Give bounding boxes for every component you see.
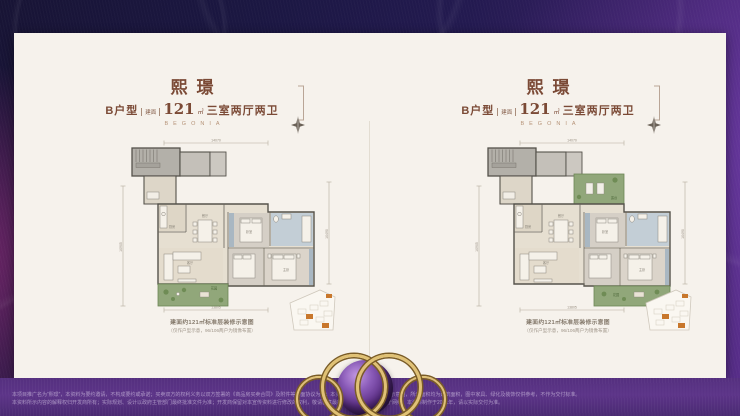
dimension-label-right: 10490 xyxy=(681,229,685,239)
room-label-master: 主卧 xyxy=(283,267,290,272)
unit-type-label: B户型 xyxy=(461,102,494,118)
compass-icon xyxy=(646,115,662,135)
unit-spec: B户型 建面 121 ㎡ 三室两厅两卫 xyxy=(14,102,370,118)
brand-name: BEGONIA xyxy=(14,121,370,127)
room-label-living: 客厅 xyxy=(543,260,550,265)
compass-icon xyxy=(290,115,306,135)
area-value: 121 xyxy=(163,102,194,117)
plan-caption: 建面约121㎡标准层装修示意图 （仅作户型示意，96/106两户为镜像布置） xyxy=(470,317,666,334)
room-label-bedroom: 卧室 xyxy=(246,229,252,234)
page-background: 熙璟 B户型 建面 121 ㎡ 三室两厅两卫 BEGONIA xyxy=(0,0,740,416)
dimension-label-bottom: 13805 xyxy=(567,306,577,310)
dimension-label-left: 10905 xyxy=(475,242,479,252)
site-key-host xyxy=(286,287,338,338)
brand-name: BEGONIA xyxy=(370,121,726,127)
room-label-kitchen: 厨房 xyxy=(169,224,175,229)
floorplan-panel-left: 熙璟 B户型 建面 121 ㎡ 三室两厅两卫 BEGONIA xyxy=(14,33,370,378)
room-label-dining: 餐厅 xyxy=(202,213,209,218)
unit-type-label: B户型 xyxy=(105,102,138,118)
site-key-map xyxy=(642,287,694,333)
caption-line2: （仅作户型示意，96/106两户为镜像布置） xyxy=(114,328,310,334)
garden: 花园 xyxy=(158,284,228,306)
plan-caption: 建面约121㎡标准层装修示意图 （仅作户型示意，96/106两户为镜像布置） xyxy=(114,317,310,334)
caption-line2: （仅作户型示意，96/106两户为镜像布置） xyxy=(470,328,666,334)
unit-spec: B户型 建面 121 ㎡ 三室两厅两卫 xyxy=(370,102,726,118)
area-unit: ㎡ xyxy=(554,107,560,116)
layout-label: 三室两厅两卫 xyxy=(207,102,279,118)
dimension-label-right: 10490 xyxy=(325,229,329,239)
room-label-terrace: 露台 xyxy=(611,195,617,200)
site-key-host xyxy=(642,287,694,338)
brand-ornament xyxy=(320,350,420,416)
gold-ring-icon xyxy=(356,354,422,416)
floorplan-panel-right: 熙璟 B户型 建面 121 ㎡ 三室两厅两卫 BEGONIA xyxy=(370,33,726,378)
floorplan-card: 熙璟 B户型 建面 121 ㎡ 三室两厅两卫 BEGONIA xyxy=(14,33,726,378)
entry-hall xyxy=(500,176,532,204)
caption-line1: 建面约121㎡标准层装修示意图 xyxy=(470,317,666,326)
dimension-label-top: 14070 xyxy=(567,139,577,143)
unit-title: 熙璟 xyxy=(14,73,370,98)
stair-core xyxy=(132,148,226,176)
room-label-bedroom: 卧室 xyxy=(602,229,608,234)
site-key-map xyxy=(286,287,338,333)
dimension-label-top: 14070 xyxy=(211,139,221,143)
room-label-master: 主卧 xyxy=(639,267,646,272)
area-value: 121 xyxy=(519,102,550,117)
room-label-kitchen: 厨房 xyxy=(525,224,531,229)
area-unit: ㎡ xyxy=(198,107,204,116)
room-label-garden: 花园 xyxy=(211,286,217,291)
room-label-dining: 餐厅 xyxy=(558,213,565,218)
layout-label: 三室两厅两卫 xyxy=(563,102,635,118)
area-tag: 建面 xyxy=(141,108,160,116)
entry-hall xyxy=(144,176,176,204)
unit-header: 熙璟 B户型 建面 121 ㎡ 三室两厅两卫 BEGONIA xyxy=(370,73,726,127)
area-tag: 建面 xyxy=(497,108,516,116)
caption-line1: 建面约121㎡标准层装修示意图 xyxy=(114,317,310,326)
terrace: 露台 xyxy=(574,174,624,204)
unit-title: 熙璟 xyxy=(370,73,726,98)
dimension-label-left: 10905 xyxy=(119,242,123,252)
unit-header: 熙璟 B户型 建面 121 ㎡ 三室两厅两卫 BEGONIA xyxy=(14,73,370,127)
room-label-garden: 花园 xyxy=(613,292,619,297)
room-label-living: 客厅 xyxy=(187,260,194,265)
stair-core xyxy=(488,148,582,176)
